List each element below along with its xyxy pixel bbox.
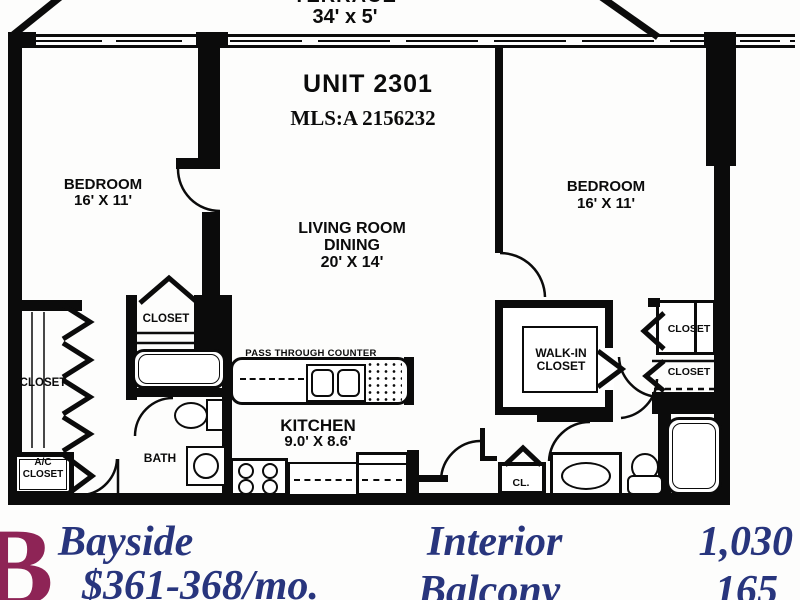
- price: $361-368/mo.: [82, 565, 319, 600]
- terrace-diagonal-right: [597, 0, 658, 37]
- floorplan-page: TERRACE 34' x 5' UNIT 2301 MLS:A 2156232…: [0, 0, 800, 600]
- double-sink-basin: [311, 369, 334, 397]
- wall-segment-hall-bar: [410, 475, 448, 482]
- stove-burner: [262, 463, 278, 479]
- walkin-label2: CLOSET: [537, 360, 586, 372]
- ac-closet-label2: CLOSET: [23, 470, 64, 480]
- walkin-label1: WALK-IN: [535, 347, 586, 359]
- door-arc: [500, 253, 545, 297]
- closet-door-chevron: [63, 380, 90, 414]
- window-wall-top-line: [8, 34, 795, 37]
- wall-segment-left-bedroom-lower: [202, 212, 220, 304]
- window-wall-bottom-line: [8, 45, 795, 48]
- wall-segment-tub-platform: [128, 388, 230, 397]
- door-arc: [619, 357, 658, 397]
- toilet-right-base: [627, 475, 663, 495]
- unit-title: UNIT 2301: [303, 72, 433, 97]
- toilet-left-tank: [206, 399, 224, 431]
- kitchen-name: KITCHEN: [280, 417, 356, 434]
- wall-block-right: [652, 392, 730, 414]
- unit-mls: MLS:A 2156232: [290, 108, 435, 129]
- refrigerator-dash: [362, 479, 402, 481]
- terrace-diagonal-left: [13, 0, 64, 35]
- closet-door-chevron: [63, 343, 90, 377]
- toilet-left-bowl: [174, 402, 208, 429]
- stove-burner: [238, 479, 254, 495]
- wall-segment-left-exterior: [8, 34, 22, 503]
- refrigerator-inner-line: [359, 463, 406, 465]
- stove-burner: [262, 479, 278, 495]
- balcony-label: Balcony: [418, 570, 560, 600]
- vanity-basin: [561, 462, 611, 490]
- bedroom-right-dims: 16' X 11': [577, 196, 635, 211]
- interior-label: Interior: [427, 521, 562, 563]
- closet-door-chevron: [646, 361, 664, 391]
- closet-right-nub: [648, 298, 660, 307]
- closet-right-bottom-label: CLOSET: [668, 367, 711, 378]
- wall-segment-left-bedroom: [198, 45, 220, 167]
- door-arc: [84, 459, 117, 495]
- building-name: Bayside: [58, 521, 193, 563]
- cl-closet-label: CL.: [513, 478, 530, 489]
- door-arc: [135, 398, 173, 436]
- closet-right-top-label: CLOSET: [668, 324, 711, 335]
- bath-label: BATH: [144, 452, 176, 464]
- ac-closet-label1: A/C: [34, 458, 51, 468]
- living-room-line1: LIVING ROOM: [298, 221, 406, 237]
- wall-segment-closet-top: [8, 300, 82, 311]
- closet-door-chevron: [63, 417, 90, 451]
- bedroom-left-name: BEDROOM: [64, 177, 142, 192]
- wall-segment-foyer-l2: [480, 456, 497, 461]
- double-sink-basin: [337, 369, 360, 397]
- bathtub-left-inner: [138, 354, 220, 384]
- terrace-dims: 34' x 5': [312, 7, 377, 27]
- stove-burner: [238, 463, 254, 479]
- door-arc: [178, 169, 220, 211]
- plan-letter: B: [0, 512, 53, 600]
- closet-left-label: CLOSET: [20, 378, 67, 390]
- kitchen-dims: 9.0' X 8.6': [284, 434, 351, 449]
- kitchen-counter-dash: [294, 479, 352, 481]
- bathtub-right-inner: [672, 423, 716, 489]
- refrigerator: [356, 452, 409, 496]
- walkin-door-gap: [604, 348, 614, 390]
- closet-door-chevron: [140, 278, 198, 303]
- counter-dash-line: [240, 378, 304, 380]
- bath-closet-label: CLOSET: [143, 314, 190, 326]
- wall-segment-walkin-south: [537, 411, 613, 422]
- counter-texture: [366, 361, 402, 402]
- wall-segment-right-bedroom: [495, 45, 503, 253]
- living-room-dims: 20' X 14': [321, 255, 384, 271]
- interior-value: 1,030: [620, 521, 793, 563]
- wall-pier-right-tall: [706, 34, 736, 166]
- balcony-value: 165: [620, 570, 778, 600]
- pass-through-label: PASS THROUGH COUNTER: [245, 349, 376, 359]
- bedroom-left-dims: 16' X 11': [74, 193, 132, 208]
- bedroom-right-name: BEDROOM: [567, 179, 645, 194]
- living-room-line2: DINING: [324, 238, 380, 254]
- door-leaf-left-bedroom: [176, 158, 220, 169]
- sink-left-basin: [193, 453, 219, 479]
